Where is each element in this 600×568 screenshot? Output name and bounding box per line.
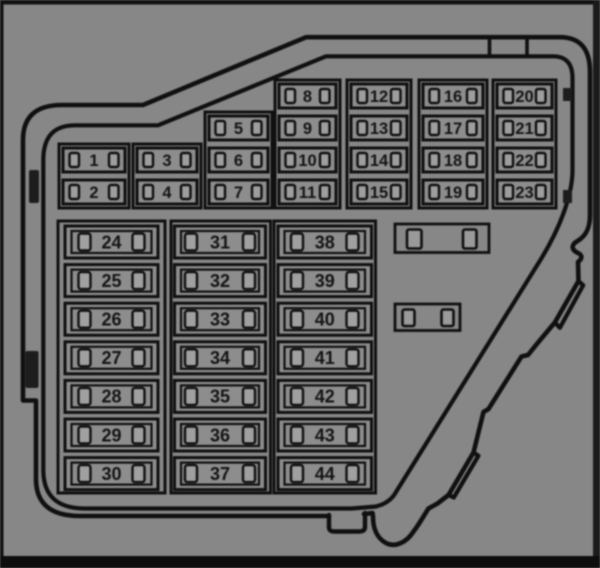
svg-text:37: 37	[210, 464, 230, 484]
svg-text:12: 12	[370, 88, 388, 106]
svg-text:9: 9	[303, 120, 312, 138]
svg-text:33: 33	[210, 310, 230, 330]
svg-text:14: 14	[370, 152, 389, 170]
svg-text:4: 4	[162, 184, 172, 202]
svg-text:1: 1	[89, 152, 98, 170]
svg-text:7: 7	[234, 184, 243, 202]
svg-text:8: 8	[303, 88, 312, 106]
svg-text:31: 31	[210, 232, 230, 252]
svg-text:40: 40	[315, 310, 335, 330]
svg-text:25: 25	[101, 271, 121, 291]
svg-text:3: 3	[162, 152, 171, 170]
svg-text:19: 19	[444, 184, 462, 202]
svg-text:15: 15	[370, 184, 388, 202]
svg-text:34: 34	[210, 348, 230, 368]
svg-text:23: 23	[515, 184, 533, 202]
svg-text:10: 10	[298, 152, 316, 170]
svg-text:27: 27	[101, 348, 121, 368]
svg-text:18: 18	[444, 152, 462, 170]
svg-text:13: 13	[370, 120, 388, 138]
svg-text:29: 29	[101, 425, 121, 445]
svg-text:5: 5	[234, 120, 243, 138]
svg-text:26: 26	[101, 310, 121, 330]
svg-text:42: 42	[315, 387, 335, 407]
svg-text:17: 17	[444, 120, 462, 138]
svg-text:21: 21	[515, 120, 533, 138]
svg-text:2: 2	[89, 184, 98, 202]
svg-text:24: 24	[101, 232, 121, 252]
svg-text:35: 35	[210, 387, 230, 407]
svg-text:41: 41	[315, 348, 335, 368]
svg-text:22: 22	[515, 152, 533, 170]
svg-text:43: 43	[315, 425, 335, 445]
svg-text:28: 28	[101, 387, 121, 407]
svg-text:16: 16	[444, 88, 462, 106]
svg-text:32: 32	[210, 271, 230, 291]
svg-text:30: 30	[101, 464, 121, 484]
svg-text:6: 6	[234, 152, 243, 170]
svg-text:20: 20	[515, 88, 533, 106]
svg-text:38: 38	[315, 232, 335, 252]
svg-text:11: 11	[299, 184, 316, 202]
svg-text:39: 39	[315, 271, 335, 291]
svg-text:44: 44	[315, 464, 335, 484]
svg-text:36: 36	[210, 425, 230, 445]
